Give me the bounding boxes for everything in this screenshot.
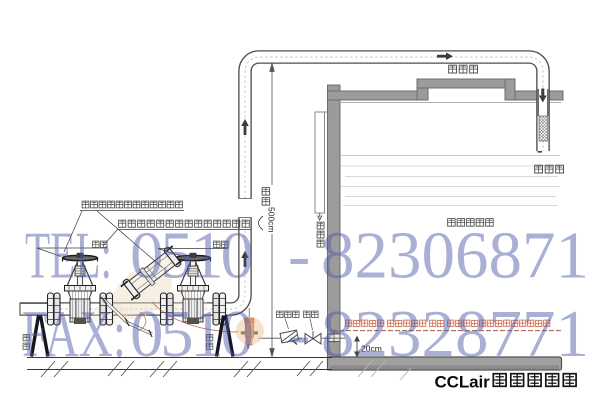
svg-text:82328771: 82328771 [321, 297, 589, 371]
svg-text:500cm: 500cm [267, 207, 277, 233]
svg-text:TEL:: TEL: [25, 219, 112, 293]
svg-text:0510: 0510 [130, 219, 254, 293]
svg-text:FAX:: FAX: [22, 297, 126, 371]
svg-text:0510: 0510 [130, 297, 254, 371]
svg-text:-: - [288, 219, 310, 293]
svg-text:CCLair: CCLair [435, 373, 491, 392]
svg-text:82306871: 82306871 [321, 219, 589, 293]
svg-text:-: - [288, 297, 310, 371]
